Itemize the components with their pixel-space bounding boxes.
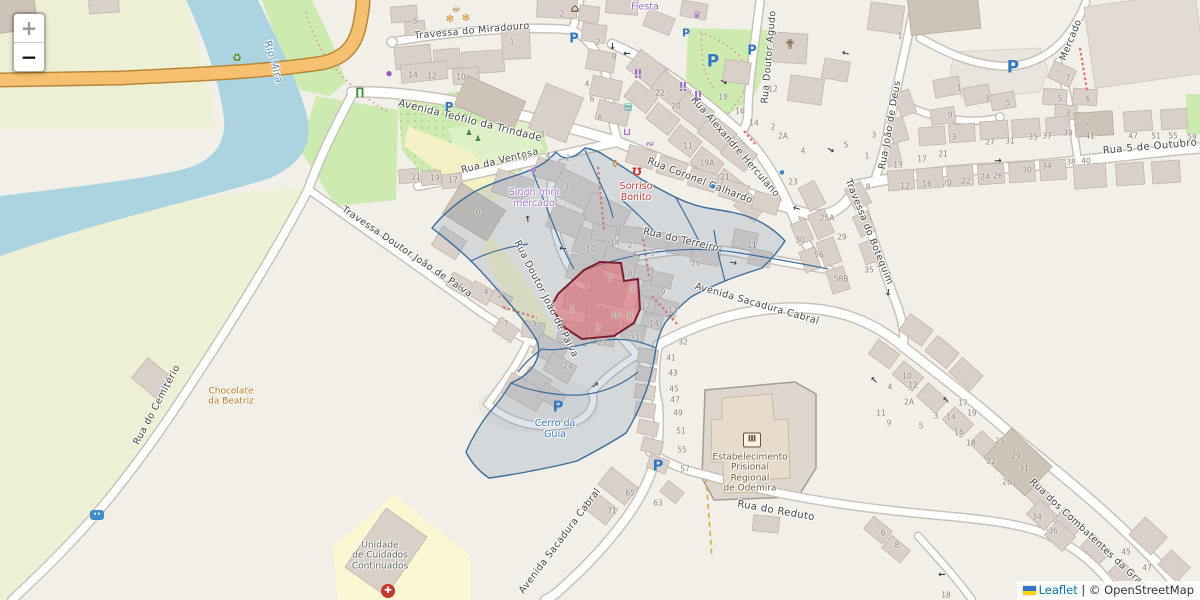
osm-link[interactable]: OpenStreetMap <box>1104 583 1194 597</box>
zoom-in-button[interactable]: + <box>14 14 44 43</box>
leaflet-link[interactable]: Leaflet <box>1039 583 1078 597</box>
attribution-bar: Leaflet | © OpenStreetMap <box>1017 581 1200 600</box>
attribution-separator: | © <box>1078 583 1104 597</box>
map-canvas[interactable] <box>0 0 1200 600</box>
ukraine-flag-icon <box>1023 586 1036 595</box>
zoom-out-button[interactable]: − <box>14 43 44 71</box>
map-container[interactable]: Travessa do MiradouroAvenida Teófilo da … <box>0 0 1200 600</box>
zoom-control: + − <box>12 12 46 73</box>
